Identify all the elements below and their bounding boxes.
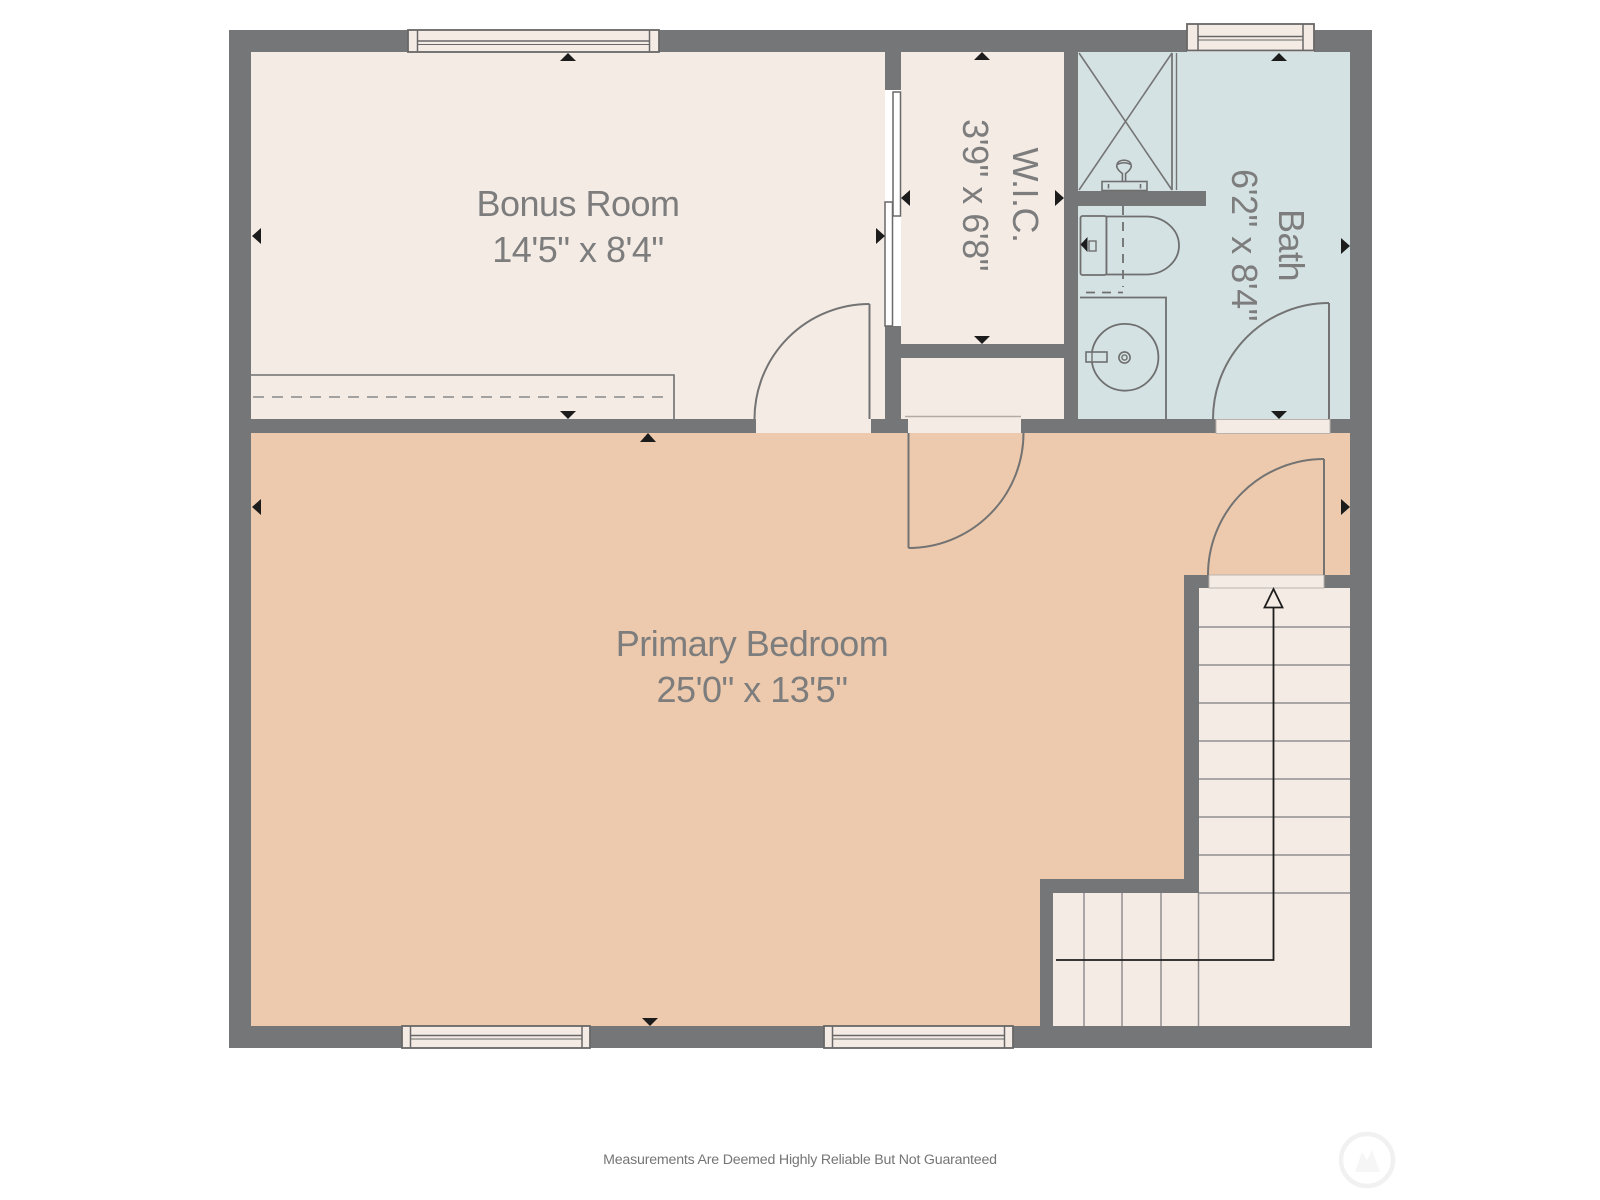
svg-text:Primary Bedroom: Primary Bedroom [616, 623, 889, 664]
svg-text:Bonus Room: Bonus Room [476, 183, 679, 224]
svg-text:Measurements Are Deemed Highly: Measurements Are Deemed Highly Reliable … [603, 1152, 997, 1168]
svg-text:25'0" x 13'5": 25'0" x 13'5" [657, 669, 848, 710]
svg-text:3'9" x 6'8": 3'9" x 6'8" [955, 119, 996, 271]
svg-text:6'2" x 8'4": 6'2" x 8'4" [1224, 169, 1265, 321]
svg-text:Bath: Bath [1271, 209, 1312, 281]
svg-text:W.I.C.: W.I.C. [1005, 148, 1046, 243]
svg-text:14'5" x 8'4": 14'5" x 8'4" [492, 229, 663, 270]
